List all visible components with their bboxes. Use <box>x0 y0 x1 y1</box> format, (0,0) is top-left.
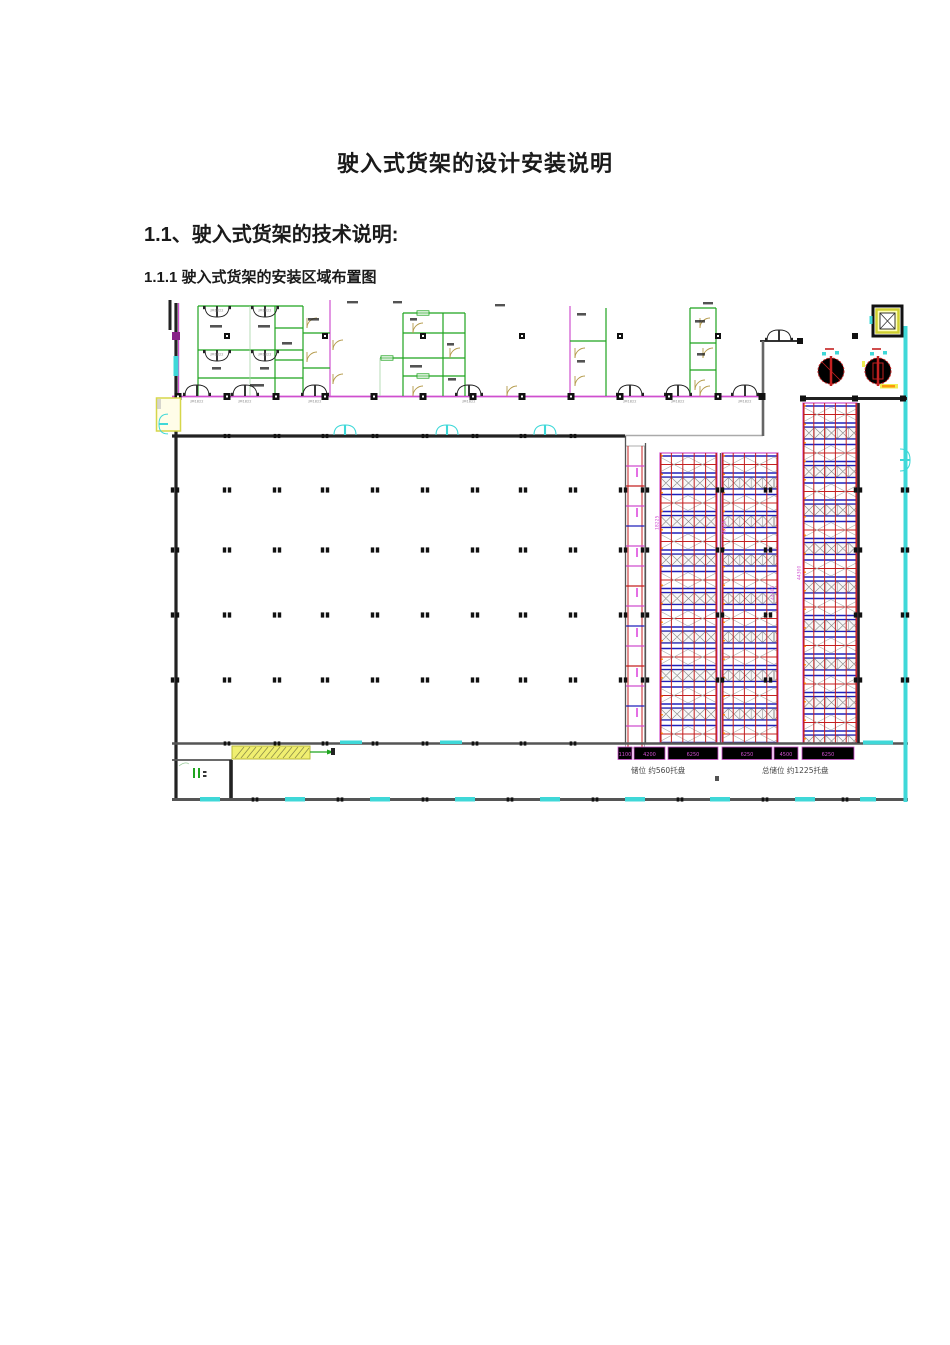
left-dock-door <box>157 398 181 434</box>
elevator-symbol <box>870 306 903 336</box>
dim-label: 6250 <box>741 752 754 758</box>
cad-floorplan: 18225 18225 44300 44300 <box>155 298 915 815</box>
svg-text:JM1822: JM1822 <box>623 400 637 404</box>
drive-in-rack-block <box>660 453 717 743</box>
svg-text:JM1822: JM1822 <box>308 400 322 404</box>
rack-dim-label: 44300 <box>770 586 776 600</box>
capacity-label-left: 储位 约560托盘 <box>631 765 686 775</box>
top-office-zone: JM1822 JM1822 JM1822 JM1822 JM1822 JM182… <box>172 300 906 404</box>
left-column <box>172 332 180 340</box>
rack-area: 18225 18225 44300 44300 <box>626 403 858 748</box>
section-heading: 1.1、驶入式货架的技术说明: <box>144 218 398 247</box>
page-title: 驶入式货架的设计安装说明 <box>0 146 950 178</box>
rack-dim-label: 18225 <box>722 521 728 535</box>
dim-label: 4200 <box>643 752 656 758</box>
subsection-heading: 1.1.1 驶入式货架的安装区域布置图 <box>144 266 377 287</box>
detail-circle <box>862 348 898 389</box>
single-door-symbols <box>307 318 713 396</box>
room-labels <box>210 301 713 387</box>
window-symbols <box>381 311 429 378</box>
capacity-label-right: 总储位 约1225托盘 <box>762 765 829 775</box>
svg-text:JM1822: JM1822 <box>238 400 252 404</box>
detail-circle <box>818 348 844 386</box>
left-window <box>174 356 179 376</box>
dim-label: 4500 <box>780 752 793 758</box>
dimension-strip: 1100 4200 6250 6250 4500 6250 储位 约560托盘 … <box>618 747 854 775</box>
dim-label: 1100 <box>619 752 632 758</box>
bottom-windows <box>200 776 876 802</box>
column-detail-circles <box>818 348 898 389</box>
svg-text:JM1822: JM1822 <box>462 400 476 404</box>
drive-in-rack-block <box>722 453 778 743</box>
svg-text:JM1822: JM1822 <box>190 400 204 404</box>
green-partitions <box>198 306 716 396</box>
layout-drawing: 18225 18225 44300 44300 <box>155 298 915 815</box>
dim-label: 6250 <box>822 752 835 758</box>
ramp-hatched <box>232 746 335 759</box>
column-grid <box>171 487 909 682</box>
svg-text:JM1822: JM1822 <box>258 309 272 313</box>
bottom-left-room <box>179 763 207 778</box>
rack-dim-label: 18225 <box>655 516 661 530</box>
svg-text:JM1822: JM1822 <box>210 353 224 357</box>
svg-text:JM1822: JM1822 <box>671 400 685 404</box>
svg-text:JM1822: JM1822 <box>738 400 752 404</box>
document-page: 驶入式货架的设计安装说明 1.1、驶入式货架的技术说明: 1.1.1 驶入式货架… <box>0 0 950 1345</box>
dim-label: 6250 <box>687 752 700 758</box>
main-hall <box>171 425 910 802</box>
svg-text:JM1822: JM1822 <box>210 309 224 313</box>
svg-text:JM1822: JM1822 <box>258 353 272 357</box>
drive-in-rack-block <box>803 403 857 743</box>
rack-dim-label: 44300 <box>797 566 803 580</box>
